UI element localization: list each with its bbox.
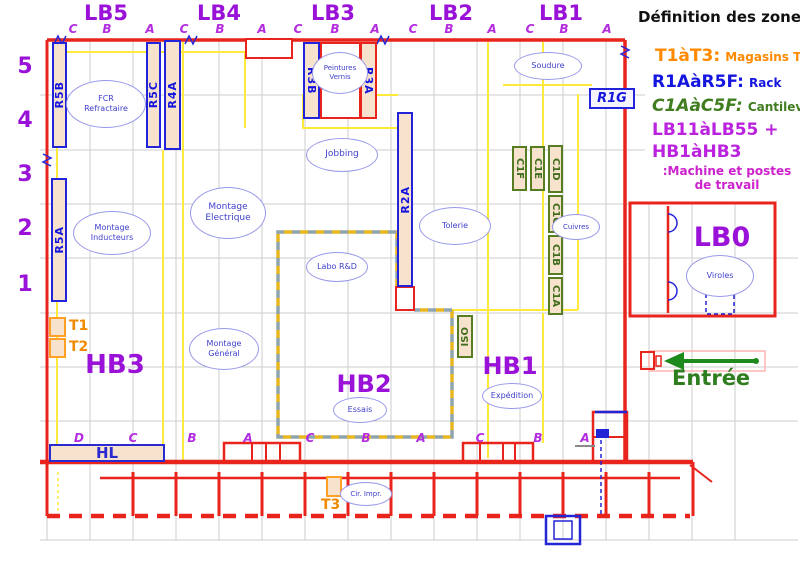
column-letter: A [238, 431, 258, 445]
truck-icon [641, 352, 654, 369]
column-letter: C [174, 22, 194, 36]
row-number: 1 [14, 272, 36, 297]
hall-label-hb2: HB2 [328, 370, 400, 398]
area-cloud-cir-impr: Cir. Impr. [340, 482, 392, 506]
column-letter: C [63, 22, 83, 36]
legend-entry-racks: R1AàR5F: Rack [652, 72, 781, 92]
column-letter: D [69, 431, 89, 445]
cantilever-c1f: C1F [512, 146, 527, 191]
column-letter: B [182, 431, 202, 445]
hl-zone-box: HL [49, 444, 165, 462]
cantilever-c1a: C1A [548, 277, 563, 315]
tour-t1-box [49, 317, 66, 337]
area-cloud-labo-rd: Labo R&D [306, 252, 368, 282]
factory-floorplan: { "colors": { "wall_red": "#e8241c", "zo… [0, 0, 800, 562]
column-letter: C [123, 431, 143, 445]
hall-label-hb1: HB1 [474, 352, 546, 380]
rack-r5c: R5C [146, 42, 161, 148]
column-letter: A [597, 22, 617, 36]
legend-entry-cantilever: C1AàC5F: Cantilever [652, 96, 800, 116]
legend-title: Définition des zones: [638, 8, 800, 26]
column-letter: B [356, 431, 376, 445]
wall-break-icon [185, 36, 197, 44]
rack-r2a: R2A [397, 112, 413, 287]
wall-break-icon [377, 36, 389, 44]
iso-box: ISO [457, 315, 473, 358]
column-letter: A [252, 22, 272, 36]
hall-label-hb3: HB3 [80, 350, 150, 380]
area-cloud-montage-general: Montage Général [189, 328, 259, 370]
cantilever-c1b: C1B [548, 235, 563, 275]
column-letter: B [325, 22, 345, 36]
rack-r5a: R5A [51, 178, 67, 302]
hall-label-lb0: LB0 [686, 222, 758, 253]
column-letter: B [97, 22, 117, 36]
row-number: 4 [14, 108, 36, 133]
column-letter: C [470, 431, 490, 445]
area-cloud-tolerie: Tolerie [419, 207, 491, 245]
area-cloud-fcr: FCR Refractaire [66, 80, 146, 128]
legend-entry-hb: HB1àHB3 [652, 142, 742, 162]
legend-entry-lb: LB11àLB55 + [652, 120, 779, 140]
area-cloud-jobbing: Jobbing [306, 138, 378, 172]
row-number: 3 [14, 162, 36, 187]
area-cloud-montage-electrique: Montage Electrique [190, 187, 266, 239]
column-letter: B [439, 22, 459, 36]
rack-r5b: R5B [52, 42, 67, 148]
column-letter: C [403, 22, 423, 36]
cantilever-c1d: C1D [548, 145, 563, 193]
wall-break-icon [621, 46, 629, 58]
area-cloud-viroles: Viroles [686, 255, 754, 297]
column-letter: C [520, 22, 540, 36]
wall-break-icon [43, 154, 51, 166]
cantilever-c1e: C1E [530, 146, 545, 191]
legend-entry-tours: T1àT3: Magasins Tour [655, 46, 800, 66]
row-number: 5 [14, 54, 36, 79]
tour-t2-box [49, 338, 66, 358]
tour-t1-label: T1 [69, 318, 88, 334]
area-cloud-montage-inducteurs: Montage Inducteurs [73, 211, 151, 255]
row-number: 2 [14, 216, 36, 241]
tour-t3-label: T3 [321, 497, 340, 513]
column-letter: C [288, 22, 308, 36]
entrance-label: Entrée [672, 366, 750, 390]
rack-r1g: R1G [589, 88, 635, 109]
column-letter: B [528, 431, 548, 445]
column-letter: A [411, 431, 431, 445]
area-cloud-essais: Essais [333, 397, 387, 423]
column-letter: A [140, 22, 160, 36]
area-cloud-cuivres: Cuivres [552, 214, 600, 240]
column-letter: B [554, 22, 574, 36]
column-letter: A [575, 431, 595, 447]
column-letter: A [365, 22, 385, 36]
column-letter: C [300, 431, 320, 445]
area-cloud-soudure: Soudure [514, 52, 582, 80]
dock-box [245, 38, 293, 59]
column-letter: A [482, 22, 502, 36]
area-cloud-expedition: Expédition [482, 383, 542, 409]
area-cloud-peintures: Peintures Vernis [312, 52, 368, 94]
rack-r4a: R4A [164, 40, 181, 150]
legend-note: :Machine et postes de travail [652, 164, 800, 192]
column-letter: B [210, 22, 230, 36]
